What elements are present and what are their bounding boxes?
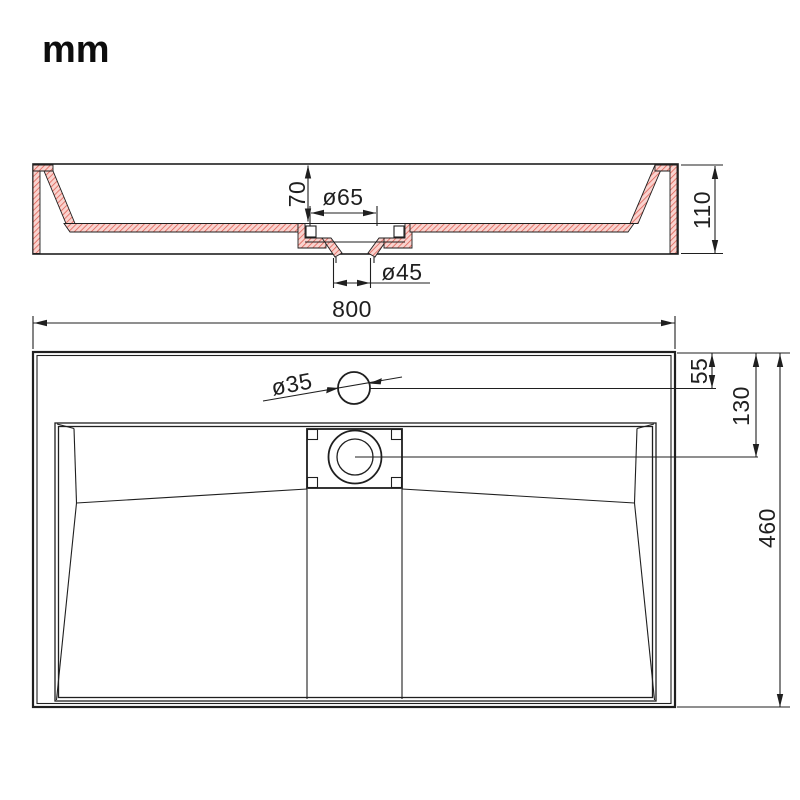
drain-plate-corner-tab: [308, 478, 318, 488]
dim-drain-offset-label: 130: [728, 386, 754, 426]
drain-plate-corner-tab: [308, 430, 318, 440]
drain-plate-corner-tab: [392, 478, 402, 488]
technical-drawing: mm 70: [0, 0, 800, 800]
canvas-background: [0, 0, 800, 800]
dim-drain-outlet-diameter-label: ø45: [381, 259, 422, 285]
dim-overall-depth-label: 460: [754, 508, 780, 548]
dim-overall-width-label: 800: [332, 296, 372, 322]
dim-drain-recess-diameter-label: ø65: [322, 184, 363, 210]
dim-faucet-offset: 55: [686, 353, 715, 389]
drain-plate-corner-tab: [392, 430, 402, 440]
dim-faucet-offset-label: 55: [686, 358, 712, 385]
dim-overall-height-label: 110: [689, 191, 715, 229]
dim-basin-depth-label: 70: [284, 181, 310, 208]
unit-label: mm: [42, 29, 110, 71]
drain-clip-notch-right: [394, 226, 404, 237]
drain-clip-notch-left: [306, 226, 316, 237]
